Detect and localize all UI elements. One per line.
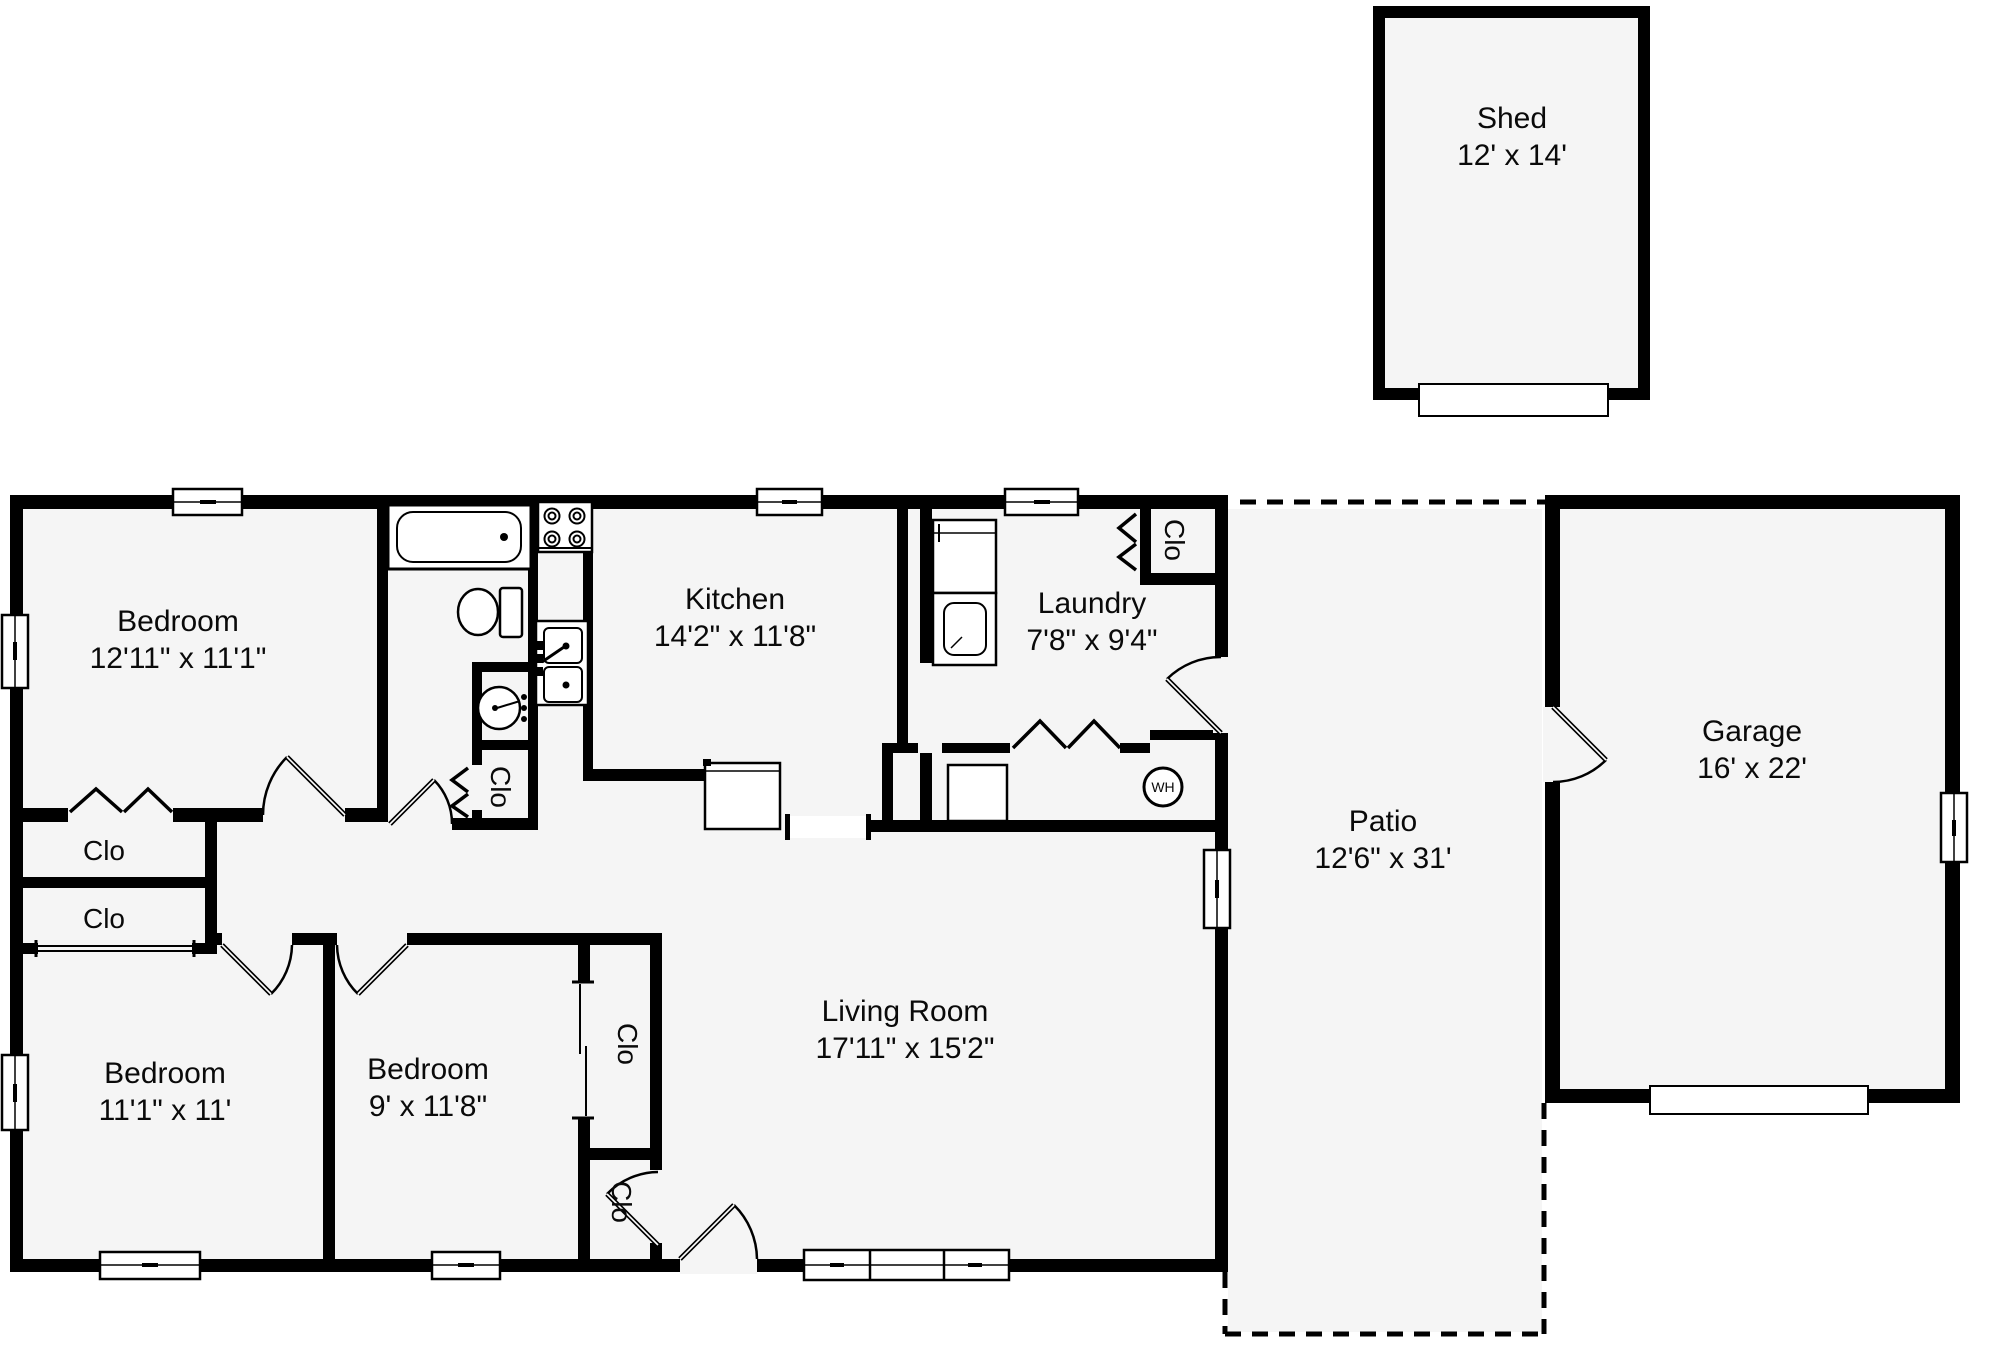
patio-floor <box>1228 509 1542 1332</box>
window-top-laundry <box>1005 489 1078 515</box>
window-left-bedroom1 <box>2 615 28 688</box>
kitchen-sink-icon <box>536 621 588 705</box>
bath-closet-label: Clo <box>484 766 516 808</box>
washer-dryer-icon <box>933 520 996 665</box>
laundry-label: Laundry 7'8" x 9'4" <box>1026 585 1157 659</box>
closet1-label: Clo <box>83 835 125 867</box>
window-bottom-bedroom2 <box>100 1252 200 1279</box>
garage-label: Garage 16' x 22' <box>1697 713 1807 787</box>
window-top-bedroom1 <box>173 489 242 515</box>
closet2-label: Clo <box>83 903 125 935</box>
laundry-closet-label: Clo <box>1158 519 1190 561</box>
bedroom1-label: Bedroom 12'11" x 11'1" <box>90 603 267 677</box>
floor-plan-drawing <box>0 0 2007 1349</box>
window-right-living <box>1204 850 1230 928</box>
garage-side-door-opening <box>1543 707 1562 782</box>
bedroom2-label: Bedroom 11'1" x 11' <box>99 1055 232 1129</box>
patio-dims: 12'6" x 31' <box>1314 840 1451 877</box>
living-room-name: Living Room <box>816 993 995 1030</box>
window-bottom-bedroom3 <box>432 1252 500 1279</box>
floor-fills <box>22 18 1945 1332</box>
living-room-dims: 17'11" x 15'2" <box>816 1030 995 1067</box>
bedroom3-dims: 9' x 11'8" <box>367 1088 489 1125</box>
shed-dims: 12' x 14' <box>1457 137 1567 174</box>
bedroom1-name: Bedroom <box>90 603 267 640</box>
bathtub-icon <box>388 505 531 569</box>
patio-label: Patio 12'6" x 31' <box>1314 803 1451 877</box>
toilet-icon <box>458 588 522 637</box>
cased-opening <box>785 814 871 840</box>
living-room-label: Living Room 17'11" x 15'2" <box>816 993 995 1067</box>
bedroom3-name: Bedroom <box>367 1051 489 1088</box>
garage-dims: 16' x 22' <box>1697 750 1807 787</box>
shed-name: Shed <box>1457 100 1567 137</box>
utility-appliance <box>948 765 1007 821</box>
garage-name: Garage <box>1697 713 1807 750</box>
bedroom3-label: Bedroom 9' x 11'8" <box>367 1051 489 1125</box>
bedroom1-dims: 12'11" x 11'1" <box>90 640 267 677</box>
window-right-garage <box>1941 793 1967 862</box>
garage-overhead-door <box>1650 1086 1868 1114</box>
water-heater-label: WH <box>1151 779 1174 795</box>
shed-floor <box>1385 18 1638 388</box>
shed-door <box>1419 384 1608 416</box>
entry-closet-label: Clo <box>605 1181 637 1223</box>
stove-icon <box>538 502 592 552</box>
laundry-dims: 7'8" x 9'4" <box>1026 622 1157 659</box>
floor-plan: Shed 12' x 14' Bedroom 12'11" x 11'1" Ki… <box>0 0 2007 1349</box>
window-left-bedroom2 <box>2 1055 28 1130</box>
garage-floor <box>1560 509 1945 1089</box>
kitchen-name: Kitchen <box>654 581 816 618</box>
kitchen-label: Kitchen 14'2" x 11'8" <box>654 581 816 655</box>
patio-name: Patio <box>1314 803 1451 840</box>
shed-label: Shed 12' x 14' <box>1457 100 1567 174</box>
kitchen-dims: 14'2" x 11'8" <box>654 618 816 655</box>
kitchen-island <box>703 759 780 829</box>
bedroom3-closet-label: Clo <box>611 1023 643 1065</box>
laundry-name: Laundry <box>1026 585 1157 622</box>
bedroom2-name: Bedroom <box>99 1055 232 1092</box>
window-bottom-living <box>804 1250 1009 1280</box>
bedroom2-dims: 11'1" x 11' <box>99 1092 232 1129</box>
window-top-kitchen <box>757 489 822 515</box>
